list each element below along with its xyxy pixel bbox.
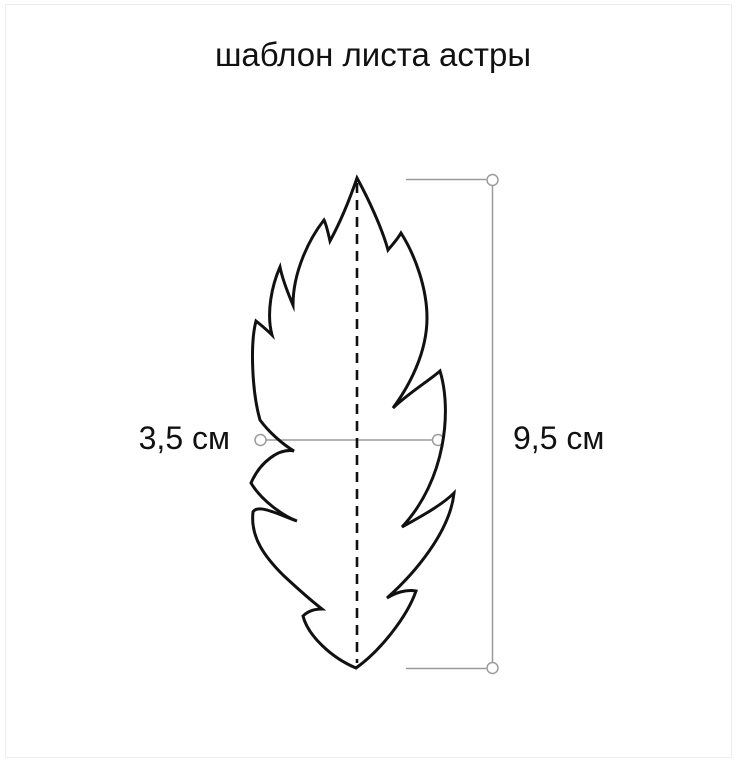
page-frame bbox=[6, 5, 732, 758]
page-title: шаблон листа астры bbox=[215, 36, 531, 73]
height-measure-top-endpoint bbox=[487, 175, 498, 186]
leaf-template-diagram: шаблон листа астры 3,5 см 9,5 см bbox=[0, 0, 736, 762]
leaf-template-diagram-page: шаблон листа астры 3,5 см 9,5 см bbox=[0, 0, 736, 762]
height-measure-bottom-endpoint bbox=[487, 663, 498, 674]
height-measure bbox=[406, 175, 498, 674]
leaf-outline bbox=[251, 178, 454, 668]
height-label: 9,5 см bbox=[513, 420, 604, 456]
width-label: 3,5 см bbox=[139, 420, 230, 456]
width-measure-left-endpoint bbox=[255, 435, 266, 446]
